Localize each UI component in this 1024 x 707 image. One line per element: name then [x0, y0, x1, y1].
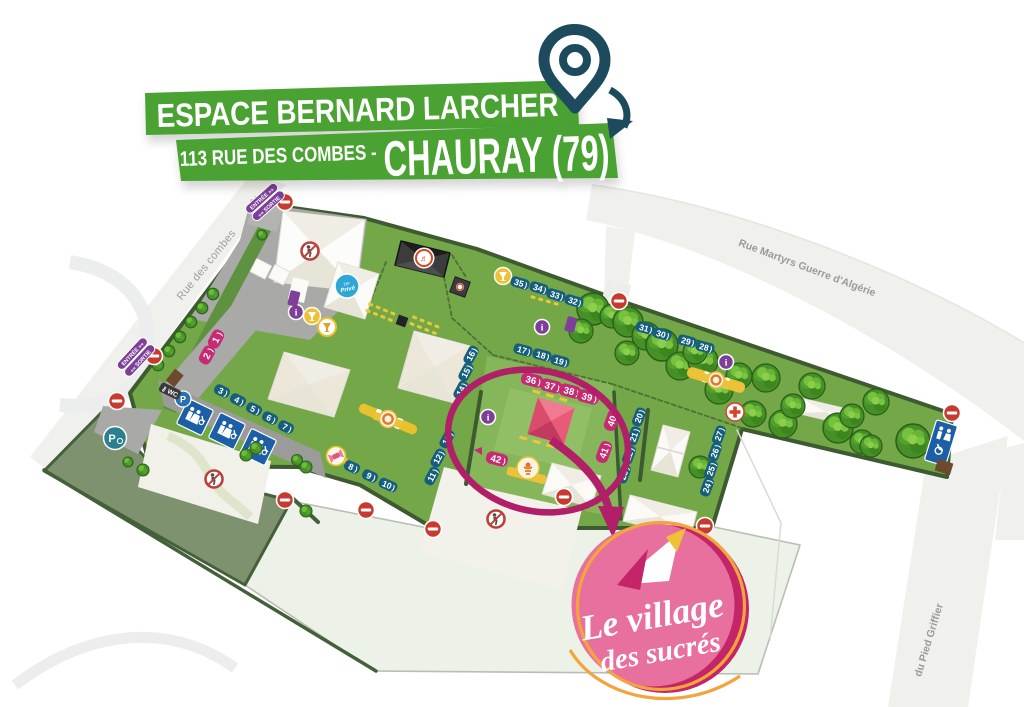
svg-text:i: i	[295, 308, 298, 318]
svg-text:i: i	[541, 323, 544, 333]
svg-text:♬: ♬	[420, 254, 428, 263]
svg-text:P: P	[108, 433, 115, 445]
svg-text:CHAURAY (79): CHAURAY (79)	[383, 125, 610, 187]
svg-text:P: P	[180, 394, 186, 404]
svg-text:i: i	[725, 358, 728, 368]
svg-text:i: i	[487, 413, 490, 423]
